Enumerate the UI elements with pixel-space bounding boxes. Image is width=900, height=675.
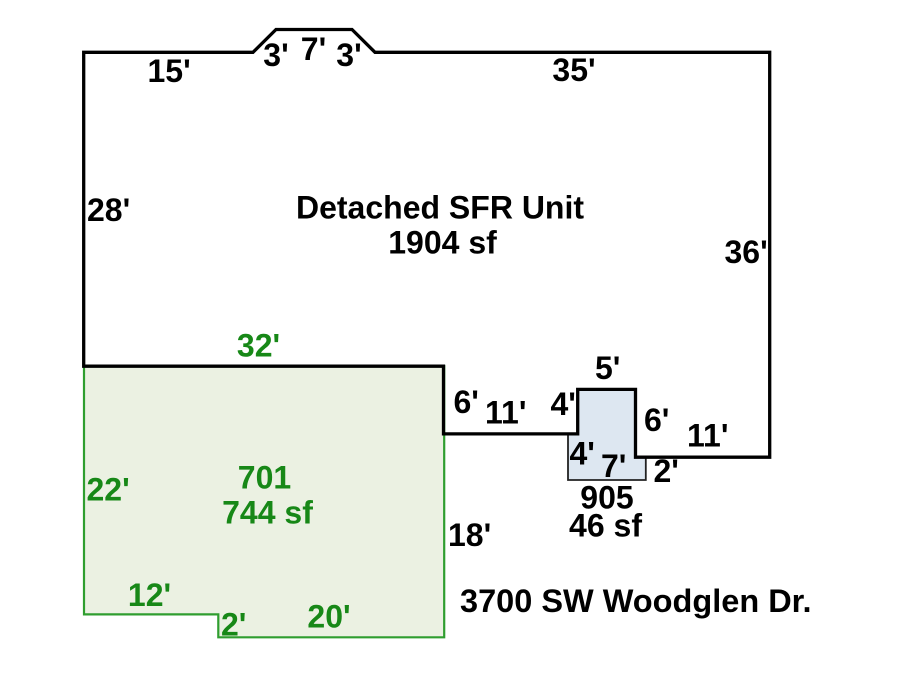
svg-text:4': 4' bbox=[570, 436, 595, 472]
svg-text:5': 5' bbox=[595, 350, 620, 386]
svg-text:32': 32' bbox=[237, 328, 280, 364]
svg-text:3700 SW Woodglen Dr.: 3700 SW Woodglen Dr. bbox=[460, 583, 812, 619]
svg-text:2': 2' bbox=[221, 607, 246, 643]
svg-text:46 sf: 46 sf bbox=[569, 508, 642, 544]
svg-text:6': 6' bbox=[454, 384, 479, 420]
svg-text:Detached SFR Unit: Detached SFR Unit bbox=[296, 190, 584, 226]
svg-text:18': 18' bbox=[448, 517, 491, 553]
svg-text:744 sf: 744 sf bbox=[222, 495, 313, 531]
svg-text:11': 11' bbox=[485, 395, 526, 431]
svg-text:12': 12' bbox=[128, 577, 171, 613]
svg-text:2': 2' bbox=[654, 453, 679, 489]
svg-text:1904 sf: 1904 sf bbox=[388, 225, 497, 261]
svg-text:7': 7' bbox=[301, 31, 326, 67]
svg-text:36': 36' bbox=[725, 234, 768, 270]
svg-text:701: 701 bbox=[238, 460, 291, 496]
svg-text:28': 28' bbox=[87, 192, 130, 228]
svg-text:3': 3' bbox=[263, 37, 288, 73]
svg-text:20': 20' bbox=[307, 599, 350, 635]
svg-text:15': 15' bbox=[148, 53, 191, 89]
svg-text:35': 35' bbox=[552, 52, 595, 88]
svg-text:11': 11' bbox=[687, 418, 728, 454]
svg-text:4': 4' bbox=[551, 386, 576, 422]
svg-text:22': 22' bbox=[87, 472, 130, 508]
svg-text:6': 6' bbox=[644, 402, 669, 438]
svg-text:3': 3' bbox=[336, 37, 361, 73]
